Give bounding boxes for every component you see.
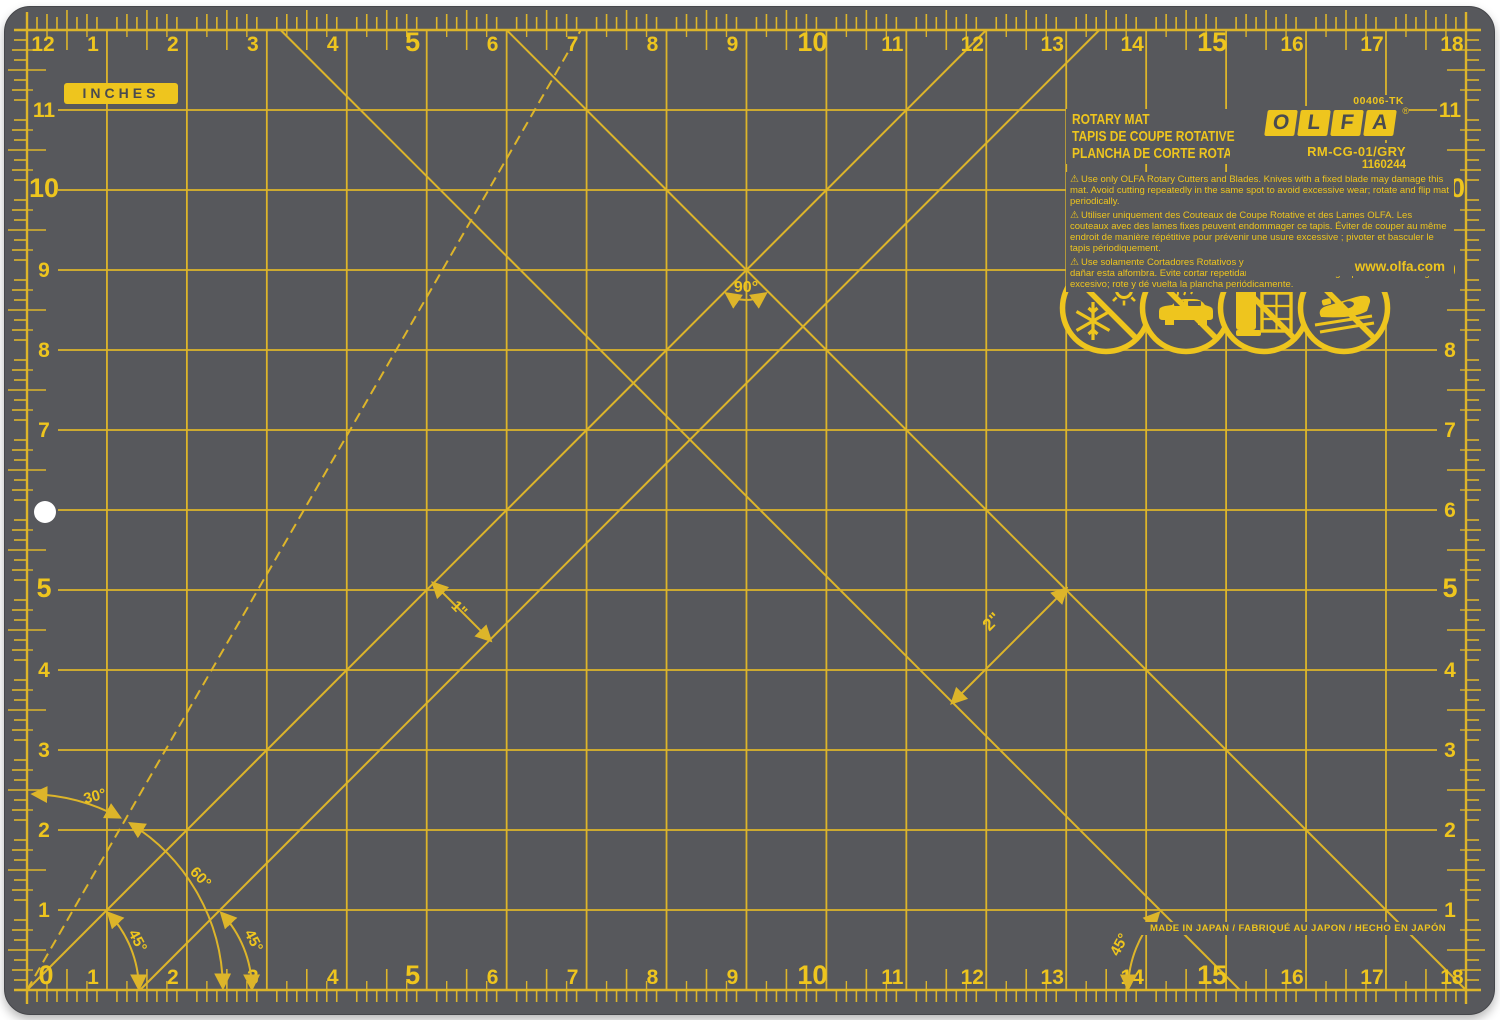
ruler-number: 18	[1440, 33, 1464, 56]
ruler-number: 6	[487, 33, 499, 56]
ruler-number: 3	[1444, 739, 1456, 762]
ruler-number: 13	[1041, 966, 1064, 989]
ruler-number: 9	[727, 966, 739, 989]
label-45deg-left-inner: 45°	[125, 927, 151, 955]
ruler-number: 4	[327, 33, 339, 56]
ruler-number: 2	[167, 966, 179, 989]
title-fr: TAPIS DE COUPE ROTATIVE	[1072, 128, 1235, 145]
warning-en: ⚠Use only OLFA Rotary Cutters and Blades…	[1070, 174, 1450, 207]
model-code: RM-CG-01/GRY	[1234, 144, 1406, 159]
ruler-number: 2	[1444, 819, 1456, 842]
ruler-number: 7	[567, 33, 579, 56]
ruler-number: 18	[1440, 966, 1464, 989]
ruler-number: 2	[167, 33, 179, 56]
arc-60deg	[131, 824, 223, 987]
ruler-number: 5	[36, 573, 51, 603]
ruler-number: 7	[38, 419, 50, 442]
ruler-number: 10	[797, 27, 827, 57]
ruler-number: 7	[567, 966, 579, 989]
ruler-number: 8	[38, 339, 50, 362]
warning-triangle-icon: ⚠	[1070, 210, 1079, 221]
ruler-number: 8	[647, 966, 659, 989]
angle-labels: 90° 30° 60° 45° 45° 45° 1" 2"	[82, 279, 1133, 959]
ruler-number: 17	[1360, 966, 1383, 989]
cutting-mat-product-image: 1212345678910111213141516171801234567891…	[0, 0, 1500, 1020]
ruler-number: 5	[405, 960, 420, 990]
ruler-number: 4	[1444, 659, 1456, 682]
title-en: ROTARY MAT	[1072, 111, 1150, 128]
ruler-number: 1	[87, 966, 99, 989]
logo-letter-a: A	[1363, 110, 1397, 136]
label-2-inch: 2"	[979, 609, 1005, 635]
ruler-number: 11	[33, 99, 56, 122]
ruler-number: 9	[727, 33, 739, 56]
ruler-number: 1	[38, 899, 50, 922]
ruler-number: 14	[1120, 966, 1144, 989]
warning-fr: ⚠Utiliser uniquement des Couteaux de Cou…	[1070, 210, 1450, 254]
ruler-number: 15	[1197, 27, 1227, 57]
logo-letter-f: F	[1330, 110, 1364, 136]
ruler-number: 12	[961, 33, 984, 56]
ruler-number: 10	[797, 960, 827, 990]
ruler-number: 17	[1360, 33, 1383, 56]
ruler-number: 0	[38, 960, 53, 990]
dimension-arrow-2in	[953, 589, 1066, 702]
ruler-number: 1	[1444, 899, 1456, 922]
ruler-number: 11	[881, 966, 904, 989]
inches-badge: INCHES	[64, 83, 178, 104]
hanging-hole	[34, 501, 56, 523]
ruler-number: 6	[1444, 499, 1456, 522]
ruler-number: 16	[1280, 33, 1303, 56]
ruler-number: 12	[31, 33, 54, 56]
label-45deg-right: 45°	[1107, 931, 1133, 959]
label-30deg: 30°	[82, 785, 108, 807]
warning-triangle-icon: ⚠	[1070, 257, 1079, 268]
ruler-number: 9	[38, 259, 50, 282]
ruler-number: 3	[247, 33, 259, 56]
ruler-number: 3	[38, 739, 50, 762]
ruler-number: 6	[487, 966, 499, 989]
ruler-number: 12	[961, 966, 984, 989]
item-number: 1160244	[1234, 159, 1406, 171]
model-info: RM-CG-01/GRY 1160244	[1230, 143, 1410, 172]
ruler-number: 5	[405, 27, 420, 57]
ruler-number: 2	[38, 819, 50, 842]
ruler-number: 5	[1442, 573, 1457, 603]
ruler-number: 16	[1280, 966, 1303, 989]
ruler-number: 4	[38, 659, 50, 682]
ruler-number: 11	[881, 33, 904, 56]
registered-mark: ®	[1402, 106, 1409, 116]
ruler-number: 8	[647, 33, 659, 56]
logo-letter-o: O	[1264, 110, 1298, 136]
ruler-number: 14	[1120, 33, 1144, 56]
website-url: www.olfa.com	[1246, 257, 1448, 276]
ruler-number: 7	[1444, 419, 1456, 442]
ruler-number: 15	[1197, 960, 1227, 990]
ruler-number: 10	[29, 173, 59, 203]
ruler-number: 4	[327, 966, 339, 989]
olfa-logo: O L F A ®	[1260, 106, 1409, 140]
label-60deg: 60°	[186, 864, 214, 892]
ruler-number: 13	[1041, 33, 1064, 56]
logo-letter-l: L	[1297, 110, 1331, 136]
ruler-number: 11	[1439, 99, 1462, 122]
warning-triangle-icon: ⚠	[1070, 174, 1079, 185]
made-in-line: MADE IN JAPAN / FABRIQUÉ AU JAPON / HECH…	[1140, 922, 1450, 935]
ruler-number: 1	[87, 33, 99, 56]
ruler-number: 8	[1444, 339, 1456, 362]
label-90deg: 90°	[734, 279, 758, 296]
